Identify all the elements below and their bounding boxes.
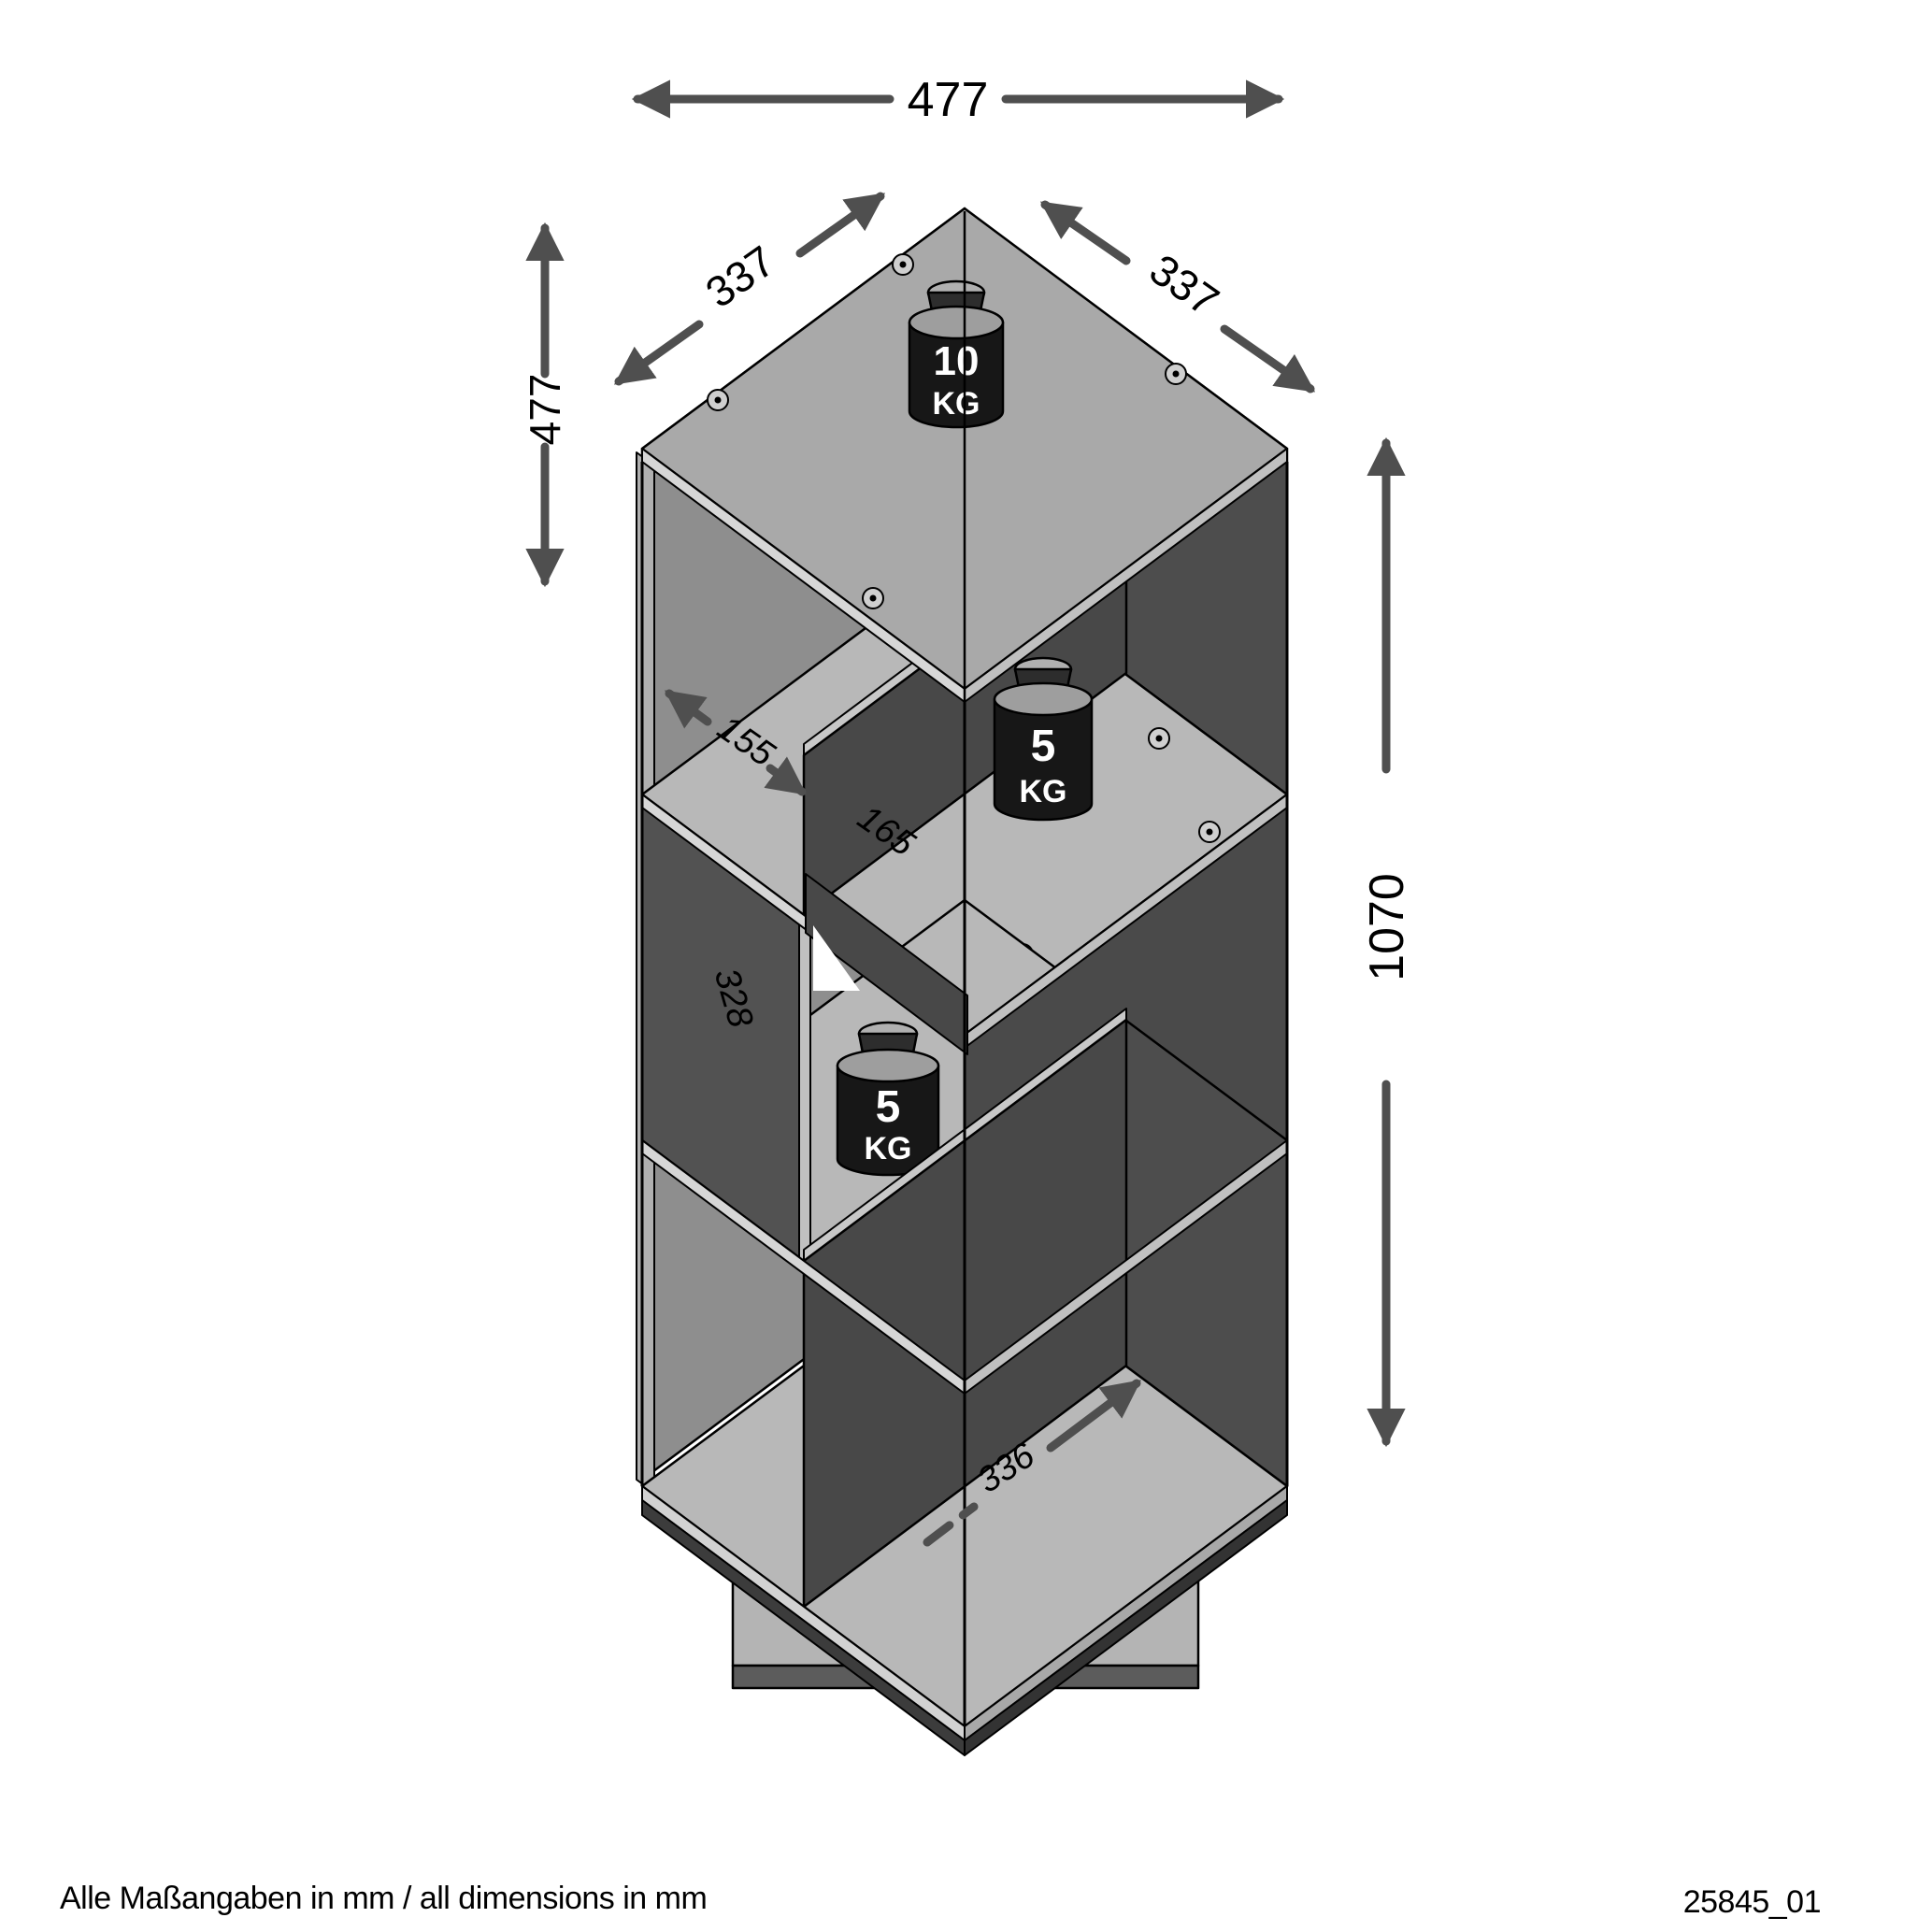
weight-middle-value: 5 bbox=[876, 1082, 901, 1132]
footer: Alle Maßangaben in mm / all dimensions i… bbox=[60, 1881, 1821, 1920]
weight-upper-unit: KG bbox=[1020, 774, 1067, 809]
weight-top bbox=[995, 683, 1092, 715]
drawing-canvas: 5 KG 5 KG bbox=[0, 0, 1932, 1932]
dim-label-overall-width: 477 bbox=[908, 73, 989, 127]
weight-upper-value: 5 bbox=[1031, 722, 1056, 771]
drawing-number: 25845_01 bbox=[1683, 1884, 1821, 1920]
footer-note: Alle Maßangaben in mm / all dimensions i… bbox=[60, 1881, 707, 1916]
screw-icon bbox=[1199, 822, 1220, 842]
dim-arrow bbox=[1045, 205, 1126, 261]
dim-overall-height: 1070 bbox=[1360, 443, 1414, 1441]
technical-drawing-page: 5 KG 5 KG bbox=[0, 0, 1932, 1932]
dim-label-overall-height: 1070 bbox=[1360, 873, 1414, 981]
screw-icon bbox=[863, 588, 883, 608]
module2-panel-edge bbox=[799, 911, 810, 1266]
dim-label-depth-right: 337 bbox=[1141, 245, 1228, 326]
dim-label-depth-left: 337 bbox=[696, 236, 783, 318]
dim-arrow bbox=[619, 324, 699, 381]
weight-top bbox=[837, 1050, 938, 1081]
weight-top-unit: KG bbox=[933, 386, 980, 422]
weight-top-value: 10 bbox=[934, 338, 980, 384]
screw-icon bbox=[1149, 728, 1169, 749]
dim-upper-height: 477 bbox=[521, 228, 569, 581]
screw-icon bbox=[708, 390, 728, 410]
dim-arrow bbox=[1224, 329, 1310, 389]
screw-icon bbox=[1166, 364, 1186, 384]
screw-icon bbox=[893, 254, 913, 275]
weight-top bbox=[909, 307, 1003, 338]
dim-overall-width: 477 bbox=[637, 73, 1279, 127]
weight-middle-unit: KG bbox=[865, 1131, 912, 1166]
dim-arrow bbox=[800, 196, 880, 253]
dim-label-upper-height: 477 bbox=[521, 374, 569, 446]
